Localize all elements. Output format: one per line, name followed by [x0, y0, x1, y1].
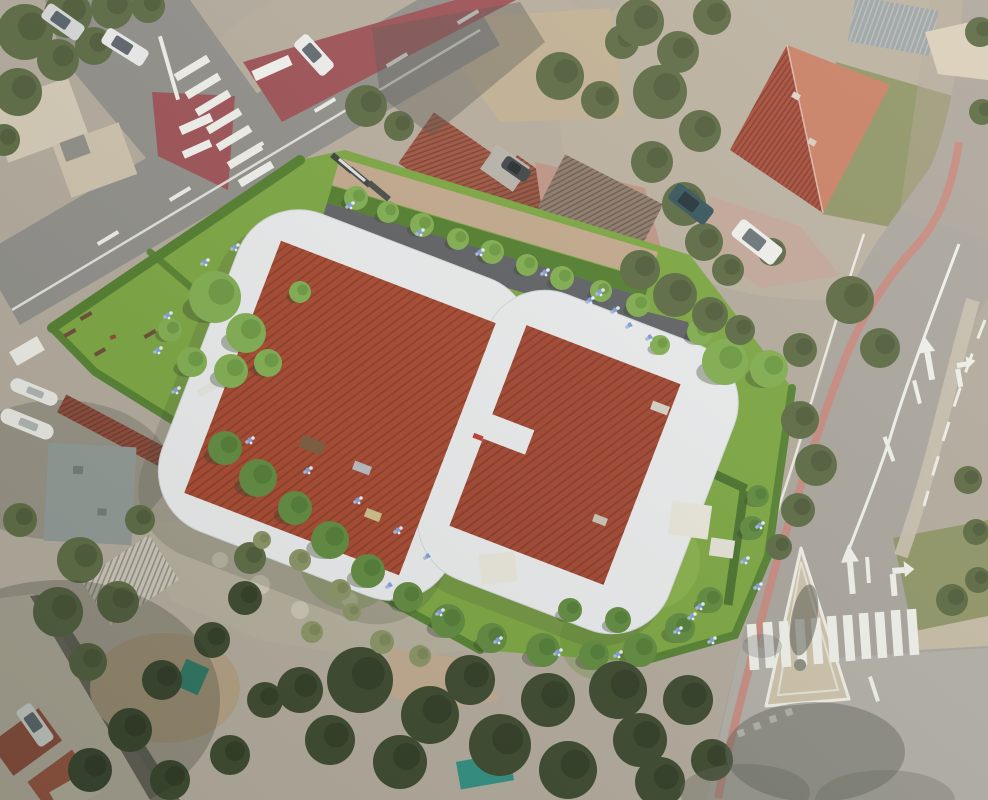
aerial-site-plan-render [0, 0, 988, 800]
lighting-overlays [0, 0, 988, 800]
haze-overlay [0, 0, 988, 800]
